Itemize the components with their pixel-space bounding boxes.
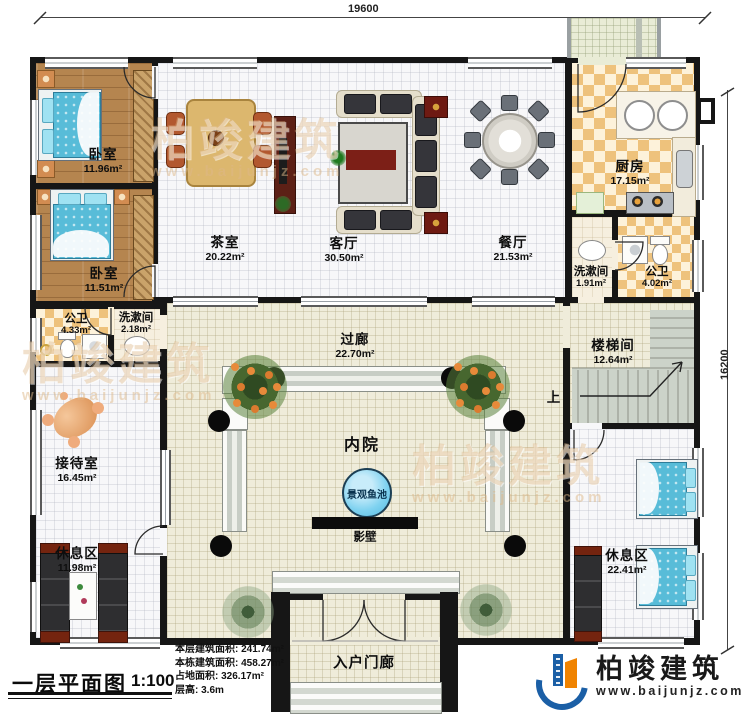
pergola-beam-top bbox=[260, 366, 470, 392]
fish-pond-label: 景观鱼池 bbox=[347, 486, 387, 501]
flower-icon bbox=[81, 598, 87, 604]
rug-stripe bbox=[346, 150, 396, 170]
window-top-bedroom bbox=[45, 57, 128, 69]
porch-label: 入户门廊 bbox=[333, 656, 395, 673]
cushion bbox=[415, 176, 437, 208]
pillow bbox=[42, 98, 54, 123]
tree-fruit bbox=[454, 363, 462, 371]
dimension-right-value: 16200 bbox=[719, 349, 731, 380]
porch-door-opening bbox=[290, 637, 440, 645]
kitchen-sink bbox=[676, 150, 693, 188]
teapot bbox=[208, 130, 224, 146]
column bbox=[503, 410, 525, 432]
toilet-bowl bbox=[652, 244, 668, 265]
burner bbox=[652, 196, 663, 207]
area-statistics: 本层建筑面积: 241.74m² 本栋建筑面积: 458.27m² 占地面积: … bbox=[175, 643, 284, 697]
stair-flight-upper bbox=[650, 310, 694, 370]
vanity bbox=[82, 334, 107, 359]
tangerine-tree-icon bbox=[223, 355, 287, 419]
washroom-right-opening bbox=[578, 297, 604, 303]
room-label-toilet-left: 公卫4.33m² bbox=[61, 313, 91, 337]
sofa-armrest bbox=[98, 631, 128, 643]
wash-basin bbox=[578, 240, 606, 261]
stat-floor-area: 本层建筑面积: 241.74m² bbox=[175, 643, 284, 657]
window-top-dining bbox=[468, 57, 552, 69]
pillow bbox=[685, 468, 696, 488]
sculpture-stone bbox=[60, 392, 68, 400]
screen-wall bbox=[312, 517, 418, 529]
room-label-washroom-right: 洗漱间1.91m² bbox=[574, 266, 609, 290]
window-top-tea-room bbox=[173, 57, 257, 69]
floor-plan-canvas: 19600 16200 bbox=[0, 0, 750, 719]
window-left-reception bbox=[30, 410, 42, 515]
closet-bedroom-1 bbox=[133, 70, 154, 182]
column bbox=[504, 535, 526, 557]
pillow bbox=[58, 193, 81, 205]
room-label-tea-room: 茶室20.22m² bbox=[205, 235, 244, 263]
title-underline bbox=[8, 692, 172, 699]
reception-door-opening bbox=[160, 528, 167, 556]
brand-logo-icon bbox=[536, 650, 588, 706]
sculpture-stone bbox=[92, 402, 104, 414]
screen-wall-label: 影壁 bbox=[354, 531, 377, 544]
pine-tree-icon bbox=[220, 584, 276, 640]
plant-icon bbox=[330, 150, 346, 166]
balcony-divider bbox=[636, 17, 642, 57]
window-top-kitchen bbox=[626, 57, 686, 69]
nightstand bbox=[37, 160, 55, 178]
towel-ring bbox=[40, 344, 52, 356]
room-label-corridor: 过廊22.70m² bbox=[335, 332, 374, 360]
column bbox=[210, 535, 232, 557]
sofa bbox=[574, 555, 602, 633]
logo-building-orange-icon bbox=[565, 658, 577, 688]
stat-building-area: 本栋建筑面积: 458.27m² bbox=[175, 657, 284, 671]
dimension-line-top bbox=[40, 17, 706, 18]
toilet-left-door-opening bbox=[108, 307, 114, 335]
chair bbox=[464, 132, 481, 148]
porch-column-right bbox=[440, 592, 458, 712]
courtyard-label: 内院 bbox=[344, 437, 380, 455]
sofa bbox=[98, 553, 128, 635]
room-label-rest-area-right: 休息区22.41m² bbox=[605, 548, 649, 576]
sculpture-stone bbox=[42, 414, 54, 426]
pillow bbox=[685, 492, 696, 512]
pergola-beam-left bbox=[222, 430, 247, 532]
porch-steps-top bbox=[272, 571, 460, 594]
toilet-bowl bbox=[60, 339, 75, 358]
chair bbox=[538, 132, 555, 148]
sofa-armrest bbox=[574, 631, 602, 642]
chair bbox=[166, 112, 185, 135]
rest-right-door-opening bbox=[572, 423, 602, 429]
cushion bbox=[344, 210, 376, 230]
washroom-left-opening bbox=[160, 315, 167, 349]
flower-icon bbox=[77, 584, 83, 590]
bed-rest-area-1 bbox=[636, 459, 698, 519]
cushion bbox=[380, 210, 412, 230]
brand-website: www.baijunjz.com bbox=[596, 684, 744, 698]
stairs-up-label: 上 bbox=[547, 390, 562, 406]
cushion bbox=[344, 94, 376, 114]
kitchen-basin bbox=[657, 100, 688, 131]
window-bottom-rest-right bbox=[598, 637, 684, 649]
wash-basin bbox=[124, 336, 150, 356]
logo-building-blue-icon bbox=[553, 654, 563, 686]
cushion bbox=[415, 140, 437, 172]
porch-steps-bottom bbox=[290, 682, 442, 714]
sliding-door-tea-corridor bbox=[173, 296, 258, 307]
room-label-toilet-right: 公卫4.02m² bbox=[642, 266, 672, 290]
brand-name: 柏竣建筑 bbox=[596, 654, 744, 684]
nightstand bbox=[37, 70, 55, 88]
stat-storey-height: 层高: 3.6m bbox=[175, 684, 284, 698]
pine-tree-icon bbox=[458, 582, 514, 638]
burner bbox=[632, 196, 643, 207]
fish-pond: 景观鱼池 bbox=[342, 468, 392, 518]
sculpture-stone bbox=[68, 436, 80, 448]
brand-logo: 柏竣建筑 www.baijunjz.com bbox=[536, 650, 744, 706]
room-label-living-room: 客厅30.50m² bbox=[324, 236, 363, 264]
bedroom-2-door-opening bbox=[152, 264, 158, 297]
window-right-toilet bbox=[692, 240, 704, 292]
stair-hall-opening bbox=[563, 306, 570, 348]
room-label-bedroom-2: 卧室11.51m² bbox=[85, 266, 124, 294]
toilet-right-door-opening bbox=[612, 240, 618, 270]
chair bbox=[166, 145, 185, 168]
sliding-door-dining-corridor bbox=[472, 296, 555, 307]
sofa-armrest bbox=[40, 631, 70, 643]
room-label-reception: 接待室16.45m² bbox=[55, 456, 99, 484]
window-reception-courtyard bbox=[160, 450, 171, 525]
window-left-bedroom-2 bbox=[30, 215, 42, 290]
pillow bbox=[685, 580, 696, 601]
kitchen-door-opening bbox=[578, 57, 626, 65]
tree-fruit bbox=[231, 363, 239, 371]
tangerine-tree-icon bbox=[446, 355, 510, 419]
room-label-kitchen: 厨房17.15m² bbox=[610, 159, 649, 187]
coffee-table bbox=[69, 572, 97, 620]
pillow bbox=[685, 555, 696, 576]
bedroom-1-door-opening bbox=[152, 66, 158, 99]
washing-machine bbox=[622, 236, 648, 264]
column bbox=[208, 410, 230, 432]
sliding-door-living-corridor bbox=[301, 296, 427, 307]
dining-table bbox=[482, 113, 538, 169]
room-label-washroom-left: 洗漱间2.18m² bbox=[119, 312, 154, 336]
pergola-beam-right bbox=[485, 430, 510, 532]
chair bbox=[501, 95, 518, 111]
room-label-bedroom-1: 卧室11.96m² bbox=[84, 147, 123, 175]
pillow bbox=[42, 129, 54, 154]
stair-flight-lower bbox=[572, 368, 694, 423]
nightstand bbox=[114, 189, 130, 205]
pillow bbox=[84, 193, 107, 205]
kitchen-flue-inner bbox=[701, 102, 711, 120]
floor-mat bbox=[424, 96, 448, 118]
plant-icon bbox=[275, 196, 291, 212]
floor-mat bbox=[424, 212, 448, 234]
blanket-fold bbox=[53, 230, 109, 257]
dimension-top-value: 19600 bbox=[348, 3, 379, 15]
plan-scale: 1:100 bbox=[131, 671, 174, 691]
kitchen-basin bbox=[624, 100, 655, 131]
stat-footprint-area: 占地面积: 326.17m² bbox=[175, 670, 284, 684]
bed-bedroom-2 bbox=[50, 189, 114, 261]
tv bbox=[279, 138, 287, 184]
balcony-floor bbox=[567, 17, 661, 58]
closet-bedroom-2 bbox=[133, 195, 154, 300]
room-label-dining-room: 餐厅21.53m² bbox=[493, 235, 532, 263]
cushion bbox=[380, 94, 412, 114]
chair bbox=[253, 112, 272, 135]
room-label-rest-area-left: 休息区11.98m² bbox=[55, 546, 99, 574]
cutting-board bbox=[576, 192, 604, 214]
chair bbox=[253, 145, 272, 168]
chair bbox=[501, 169, 518, 185]
room-label-stair-hall: 楼梯间12.64m² bbox=[591, 338, 635, 366]
